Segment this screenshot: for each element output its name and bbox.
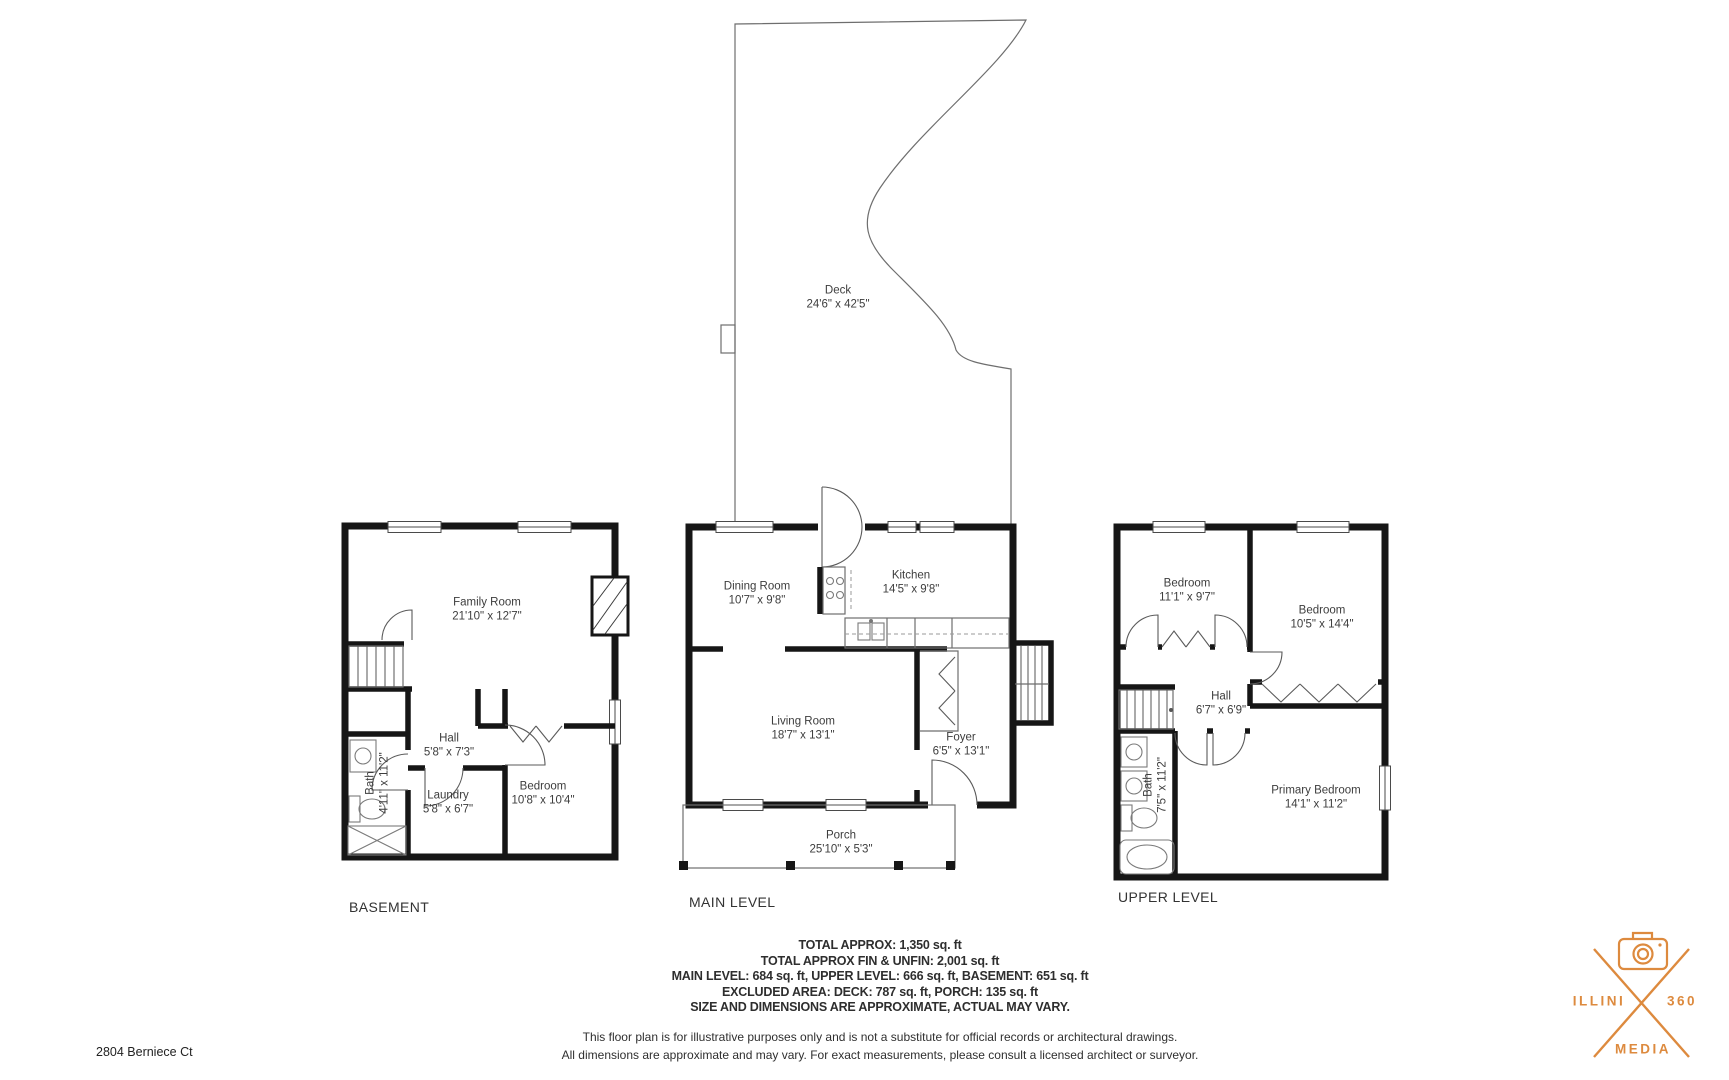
basement-title: BASEMENT (349, 899, 429, 915)
room-label-upper-bedroom-left: Bedroom 11'1" x 9'7" (1159, 577, 1215, 606)
room-name: Hall (424, 732, 474, 746)
room-label-upper-bath: Bath 7'5" x 11'2" (1142, 757, 1171, 813)
upper-windows (1153, 522, 1391, 811)
summary-line: SIZE AND DIMENSIONS ARE APPROXIMATE, ACT… (672, 1000, 1089, 1016)
room-dims: 10'5" x 14'4" (1290, 618, 1353, 632)
room-name: Bedroom (511, 780, 574, 794)
room-dims: 11'1" x 9'7" (1159, 591, 1215, 605)
summary-line: EXCLUDED AREA: DECK: 787 sq. ft, PORCH: … (672, 985, 1089, 1001)
summary-line: TOTAL APPROX: 1,350 sq. ft (672, 938, 1089, 954)
basement-doors (372, 610, 545, 806)
room-dims: 24'6" x 42'5" (806, 298, 869, 312)
room-name: Bath (364, 752, 378, 813)
room-dims: 10'7" x 9'8" (724, 594, 790, 608)
deck-utility-box (721, 325, 735, 353)
room-dims: 7'5" x 11'2" (1156, 757, 1170, 813)
room-dims: 18'7" x 13'1" (771, 729, 835, 743)
foyer-closet (920, 651, 958, 731)
floor-plan-sheet: Deck 24'6" x 42'5" Family Room 21'10" x … (0, 0, 1729, 1080)
basement-chimney (592, 577, 628, 635)
basement-stairs (345, 644, 412, 689)
room-name: Family Room (452, 596, 521, 610)
room-label-basement-bath: Bath 4'11" x 11'2" (364, 752, 393, 813)
room-name: Bedroom (1290, 604, 1353, 618)
primary-closet-doors (1262, 684, 1376, 702)
room-label-laundry: Laundry 5'8" x 6'7" (423, 789, 473, 818)
room-name: Living Room (771, 715, 835, 729)
room-name: Bedroom (1159, 577, 1215, 591)
room-dims: 14'1" x 11'2" (1271, 798, 1360, 812)
room-label-upper-hall: Hall 6'7" x 6'9" (1196, 690, 1246, 719)
room-dims: 6'5" x 13'1" (933, 745, 990, 759)
disclaimer-line: All dimensions are approximate and may v… (562, 1046, 1199, 1064)
room-name: Porch (809, 829, 872, 843)
summary-line: TOTAL APPROX FIN & UNFIN: 2,001 sq. ft (672, 954, 1089, 970)
summary-line: MAIN LEVEL: 684 sq. ft, UPPER LEVEL: 666… (672, 969, 1089, 985)
property-address: 2804 Berniece Ct (96, 1045, 193, 1059)
area-summary: TOTAL APPROX: 1,350 sq. ft TOTAL APPROX … (672, 938, 1089, 1016)
room-name: Foyer (933, 731, 990, 745)
room-label-porch: Porch 25'10" x 5'3" (809, 829, 872, 858)
room-name: Hall (1196, 690, 1246, 704)
room-label-foyer: Foyer 6'5" x 13'1" (933, 731, 990, 760)
main-level-title: MAIN LEVEL (689, 894, 775, 910)
room-dims: 25'10" x 5'3" (809, 843, 872, 857)
room-dims: 5'8" x 7'3" (424, 746, 474, 760)
room-label-kitchen: Kitchen 14'5" x 9'8" (883, 569, 940, 598)
upper-bedroom-closet-doors (1162, 631, 1210, 647)
room-label-family-room: Family Room 21'10" x 12'7" (452, 596, 521, 625)
room-name: Dining Room (724, 580, 790, 594)
deck-outline (721, 20, 1026, 527)
logo-word-media: MEDIA (1615, 1042, 1671, 1057)
room-name: Bath (1142, 757, 1156, 813)
room-label-upper-bedroom-right: Bedroom 10'5" x 14'4" (1290, 604, 1353, 633)
room-label-basement-bedroom: Bedroom 10'8" x 10'4" (511, 780, 574, 809)
room-label-living-room: Living Room 18'7" x 13'1" (771, 715, 835, 744)
floor-plan-drawing (0, 0, 1729, 1080)
room-name: Laundry (423, 789, 473, 803)
room-dims: 21'10" x 12'7" (452, 610, 521, 624)
disclaimer-line: This floor plan is for illustrative purp… (562, 1028, 1199, 1046)
room-name: Kitchen (883, 569, 940, 583)
upper-level-title: UPPER LEVEL (1118, 889, 1218, 905)
camera-icon (1619, 933, 1667, 969)
logo-word-illini: ILLINI (1573, 994, 1626, 1009)
room-dims: 4'11" x 11'2" (378, 752, 392, 813)
logo-word-360: 360 (1667, 994, 1697, 1009)
room-dims: 10'8" x 10'4" (511, 794, 574, 808)
room-dims: 5'8" x 6'7" (423, 803, 473, 817)
room-label-primary-bedroom: Primary Bedroom 14'1" x 11'2" (1271, 784, 1360, 813)
disclaimer: This floor plan is for illustrative purp… (562, 1028, 1199, 1064)
upper-level-plan (1117, 522, 1391, 878)
room-dims: 6'7" x 6'9" (1196, 704, 1246, 718)
room-dims: 14'5" x 9'8" (883, 583, 940, 597)
room-name: Deck (806, 284, 869, 298)
front-door (932, 760, 977, 805)
room-label-deck: Deck 24'6" x 42'5" (806, 284, 869, 313)
main-level-plan (679, 487, 1051, 870)
upper-stairs (1119, 690, 1173, 729)
main-stairs (1013, 643, 1051, 723)
room-label-basement-hall: Hall 5'8" x 7'3" (424, 732, 474, 761)
room-name: Primary Bedroom (1271, 784, 1360, 798)
room-label-dining-room: Dining Room 10'7" x 9'8" (724, 580, 790, 609)
